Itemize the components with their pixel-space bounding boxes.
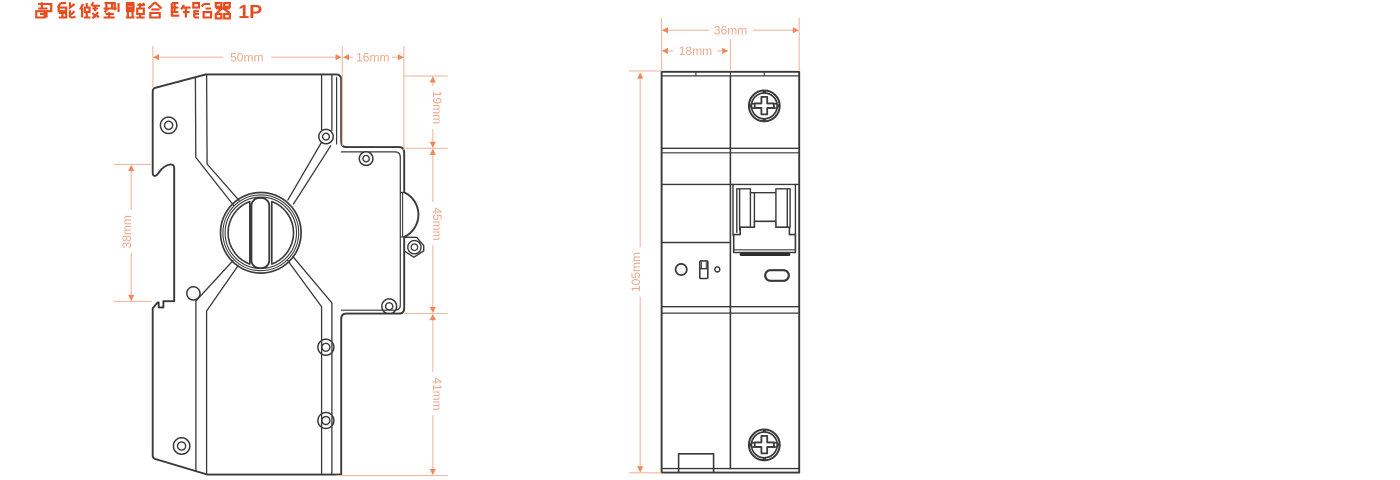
svg-text:1P: 1P: [238, 2, 262, 23]
svg-text:105mm: 105mm: [629, 252, 643, 292]
svg-text:38mm: 38mm: [120, 215, 134, 248]
svg-text:41mm: 41mm: [430, 377, 444, 410]
svg-text:19mm: 19mm: [430, 91, 444, 124]
svg-text:36mm: 36mm: [714, 23, 747, 37]
svg-text:18mm: 18mm: [679, 44, 712, 58]
svg-text:50mm: 50mm: [230, 50, 263, 64]
svg-text:16mm: 16mm: [356, 50, 389, 64]
svg-text:45mm: 45mm: [430, 207, 444, 240]
